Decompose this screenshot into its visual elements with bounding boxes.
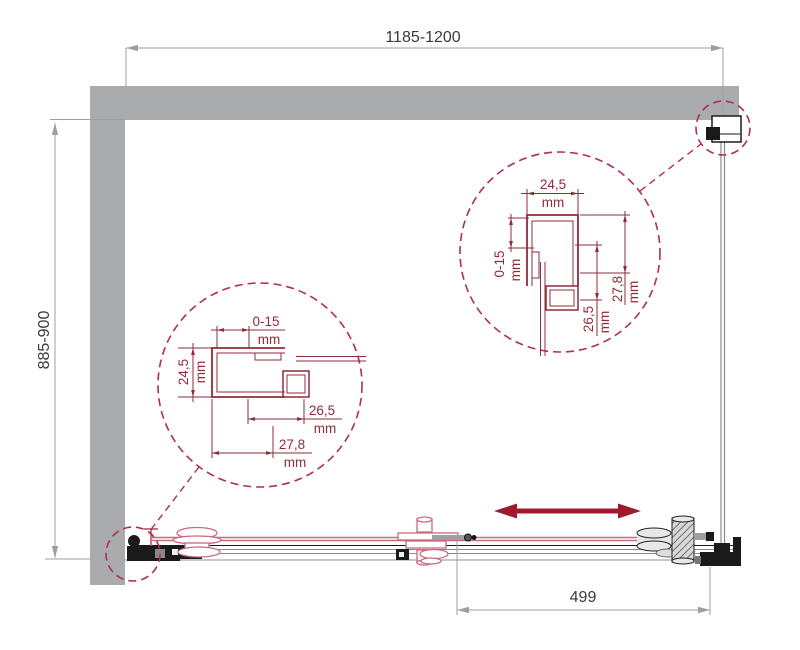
- dim-arrow-up: [52, 123, 58, 135]
- shower-enclosure-diagram: 1185-1200 885-900: [0, 0, 800, 650]
- dimension-width-label: 1185-1200: [385, 29, 460, 46]
- dimension-depth-label: 885-900: [36, 311, 53, 370]
- detail-right-width-unit: mm: [542, 195, 565, 210]
- leader-line-left: [149, 467, 199, 532]
- detail-view-top-profile: 24,5 mm 0-15 mm 26,5 mm 27,8 mm: [460, 152, 660, 356]
- wall-left: [90, 120, 125, 585]
- detail-right-adjustment-unit: mm: [508, 259, 523, 282]
- left-roller-assembly: [173, 528, 221, 558]
- detail-left-inner-label: 26,5: [309, 403, 335, 418]
- wall-top: [90, 86, 739, 120]
- dim-arrow-right: [711, 45, 723, 51]
- dim-arrow-left: [126, 45, 138, 51]
- fixed-glass-panel: [721, 142, 725, 546]
- detail-right-inner-unit: mm: [597, 311, 612, 334]
- detail-right-width-label: 24,5: [540, 177, 566, 192]
- top-wall-profile: [706, 116, 741, 142]
- detail-right-outer-unit: mm: [626, 281, 641, 304]
- detail-left-inner-unit: mm: [314, 421, 337, 436]
- detail-right-outer-label: 27,8: [610, 276, 625, 302]
- adjustment-knob: [128, 535, 140, 547]
- right-corner-bracket: [695, 537, 741, 566]
- detail-left-outer-unit: mm: [284, 455, 307, 470]
- leader-line-right: [640, 144, 701, 191]
- detail-left-adjustment-label: 0-15: [252, 314, 279, 329]
- detail-right-inner-label: 26,5: [581, 306, 596, 332]
- detail-left-adjustment-unit: mm: [258, 332, 281, 347]
- detail-left-outer-label: 27,8: [279, 437, 305, 452]
- detail-left-width-unit: mm: [193, 361, 208, 384]
- detail-view-side-profile: 0-15 mm 24,5 mm 26,5 mm 27,8 mm: [158, 283, 366, 487]
- roller-wheel: [672, 518, 694, 562]
- dimension-travel-label: 499: [570, 589, 597, 606]
- detail-right-adjustment-label: 0-15: [492, 250, 507, 277]
- handle-profile: [637, 528, 671, 538]
- dim-arrow-down: [52, 546, 58, 558]
- technical-drawing-page: 1185-1200 885-900: [0, 0, 800, 650]
- detail-left-width-label: 24,5: [176, 359, 191, 385]
- slide-direction-arrow: [494, 504, 641, 519]
